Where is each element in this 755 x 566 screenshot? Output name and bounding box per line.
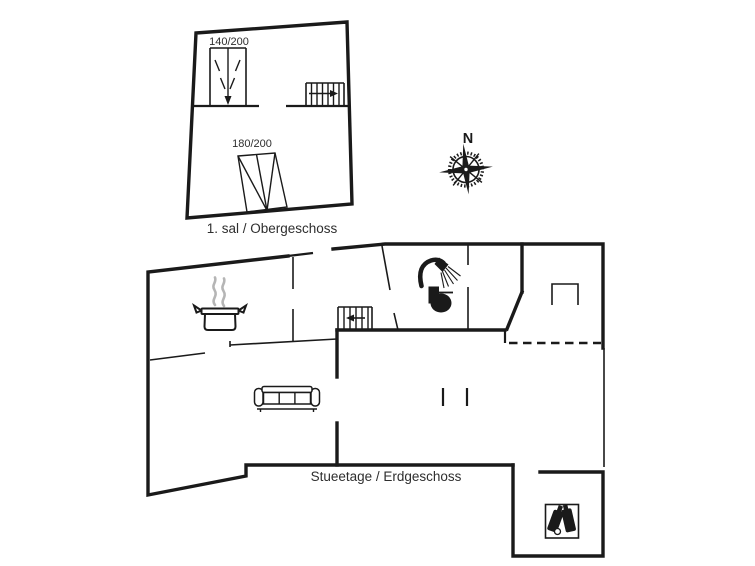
- upper-floor-label: 1. sal / Obergeschoss: [207, 221, 338, 236]
- floorplan-drawing: 140/200 180/200 1. sal / Obergeschoss: [0, 0, 755, 566]
- upper-staircase-icon: [306, 83, 344, 105]
- terrace-boundary: [509, 343, 604, 467]
- compass-north-label: N: [463, 131, 473, 147]
- toilet-icon: [429, 287, 454, 313]
- bed-180-dimension-label: 180/200: [232, 138, 272, 150]
- wine-bottles-icon: [546, 504, 579, 538]
- shower-icon: [420, 258, 460, 289]
- double-bed-140-icon: [210, 48, 246, 105]
- ground-floor-interior-walls: [150, 244, 522, 465]
- double-bed-180-icon: [238, 153, 287, 212]
- cooking-pot-icon: [194, 278, 246, 331]
- ground-staircase-icon: [338, 307, 372, 330]
- floorplan-canvas: 140/200 180/200 1. sal / Obergeschoss: [0, 0, 755, 566]
- compass-rose-icon: [436, 141, 495, 197]
- ground-floor-plan: Stueetage / Erdgeschoss: [148, 244, 604, 556]
- sofa-icon: [255, 387, 320, 413]
- upper-floor-plan: 140/200 180/200 1. sal / Obergeschoss: [187, 22, 352, 236]
- bed-140-dimension-label: 140/200: [209, 36, 249, 48]
- ground-floor-label: Stueetage / Erdgeschoss: [311, 469, 462, 484]
- fireplace-icon: [552, 284, 578, 305]
